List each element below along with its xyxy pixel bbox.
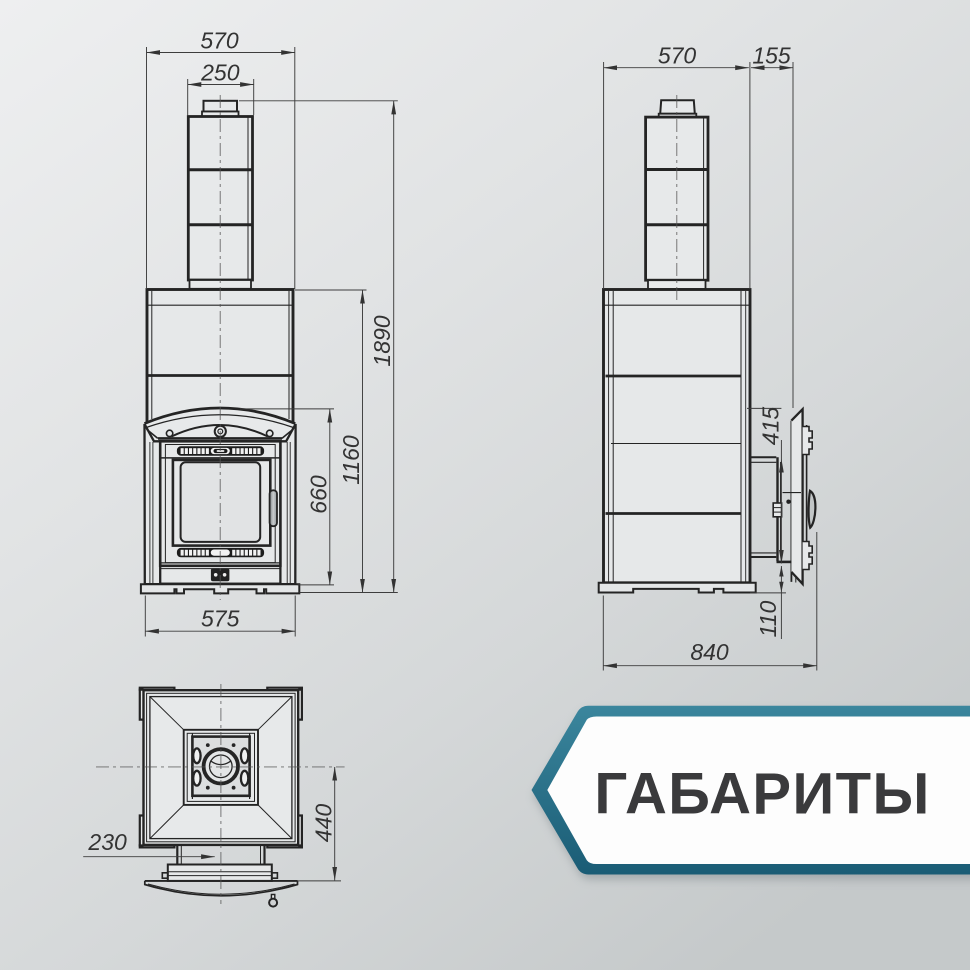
svg-text:230: 230 [87, 829, 127, 855]
svg-text:660: 660 [306, 475, 332, 514]
svg-text:415: 415 [758, 407, 784, 446]
svg-text:440: 440 [310, 804, 336, 843]
svg-text:840: 840 [690, 639, 729, 665]
svg-text:575: 575 [201, 606, 240, 632]
svg-text:ГАБАРИТЫ: ГАБАРИТЫ [594, 762, 930, 827]
svg-text:1160: 1160 [338, 435, 364, 485]
svg-text:155: 155 [752, 42, 791, 68]
svg-text:570: 570 [658, 42, 697, 68]
svg-text:110: 110 [755, 600, 781, 637]
svg-text:250: 250 [200, 59, 240, 85]
svg-text:570: 570 [200, 27, 239, 53]
svg-text:1890: 1890 [369, 315, 395, 366]
